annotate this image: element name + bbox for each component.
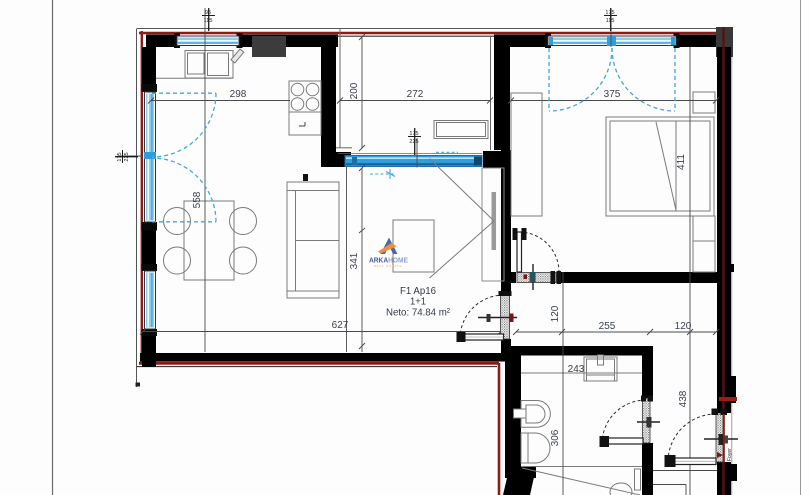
svg-text:Neto: 74.84 m²: Neto: 74.84 m² (386, 307, 450, 319)
svg-text:120: 120 (675, 321, 692, 332)
svg-text:Foyer: Foyer (727, 448, 733, 461)
svg-text:438: 438 (678, 390, 689, 407)
svg-text:341: 341 (349, 252, 360, 269)
svg-text:627: 627 (332, 320, 349, 331)
svg-text:411: 411 (676, 154, 687, 170)
svg-text:243: 243 (568, 364, 585, 375)
svg-text:115: 115 (606, 18, 615, 24)
svg-text:120: 120 (550, 305, 561, 322)
svg-text:298: 298 (230, 89, 247, 100)
svg-text:306: 306 (550, 429, 561, 446)
svg-text:225: 225 (409, 139, 418, 145)
svg-text:272: 272 (407, 89, 424, 100)
svg-text:375: 375 (604, 89, 621, 100)
svg-text:558: 558 (192, 191, 203, 208)
svg-text:REAL ESTATE: REAL ESTATE (374, 264, 403, 268)
svg-text:115: 115 (204, 18, 213, 24)
svg-text:255: 255 (599, 321, 616, 332)
svg-text:200: 200 (349, 82, 360, 99)
